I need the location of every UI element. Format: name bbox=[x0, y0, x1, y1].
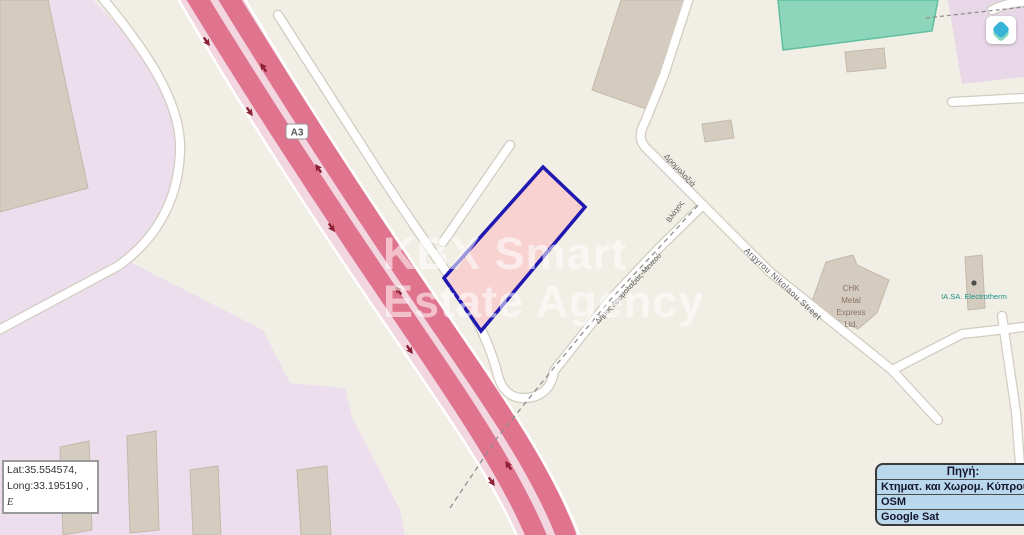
a3-badge-label: A3 bbox=[291, 128, 304, 139]
layers-diamond-icon bbox=[989, 18, 1013, 42]
source-panel-title: Πηγή: bbox=[877, 465, 1024, 480]
map-canvas[interactable]: A3 Δήμος Δρομολαξιάς-Μενεού Δρομολαξιά Β… bbox=[0, 0, 1024, 535]
chk-label-line: Ltd. bbox=[844, 320, 857, 329]
latitude-value: Lat:35.554574, bbox=[7, 463, 91, 479]
chk-label-line: Metal bbox=[841, 296, 861, 305]
poi-marker-dot bbox=[971, 280, 976, 285]
building bbox=[297, 466, 331, 535]
building bbox=[845, 48, 886, 72]
layer-option-osm[interactable]: OSM bbox=[877, 495, 1024, 510]
layers-diamond-button[interactable] bbox=[986, 16, 1016, 44]
coordinates-box: Lat:35.554574, Long:33.195190 , E bbox=[2, 460, 99, 514]
building bbox=[702, 120, 734, 142]
layer-source-panel: Πηγή: Κτηματ. και Χωρομ. Κύπρου OSM Goog… bbox=[875, 463, 1024, 526]
chk-label-line: CHK bbox=[843, 284, 861, 293]
chk-label-line: Express bbox=[837, 308, 866, 317]
longitude-value: Long:33.195190 , bbox=[7, 479, 91, 495]
map-viewport[interactable]: A3 Δήμος Δρομολαξιάς-Μενεού Δρομολαξιά Β… bbox=[0, 0, 1024, 535]
building bbox=[127, 431, 159, 533]
layer-option-ktimat[interactable]: Κτηματ. και Χωρομ. Κύπρου bbox=[877, 480, 1024, 495]
a3-road-badge: A3 bbox=[286, 124, 308, 139]
top-right-road bbox=[952, 98, 1024, 102]
coordinates-suffix: E bbox=[7, 495, 91, 511]
layer-option-google-sat[interactable]: Google Sat bbox=[877, 510, 1024, 524]
electrotherm-poi-label: IA.SA. Electrotherm bbox=[941, 292, 1007, 301]
building bbox=[190, 466, 221, 535]
